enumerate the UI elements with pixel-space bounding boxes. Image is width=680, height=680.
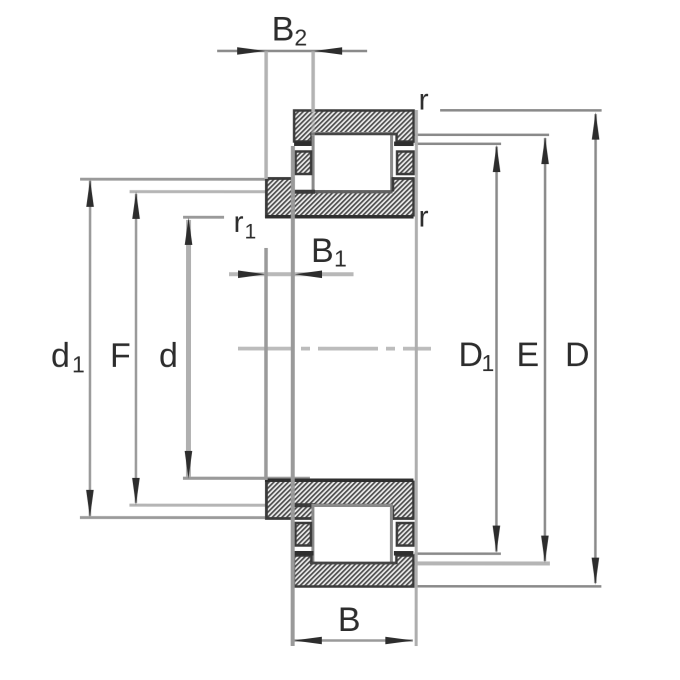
svg-text:B: B xyxy=(338,601,361,639)
svg-text:d: d xyxy=(159,337,178,375)
svg-text:d: d xyxy=(51,337,70,375)
svg-text:F: F xyxy=(110,337,131,375)
svg-text:B: B xyxy=(311,232,334,270)
svg-text:D: D xyxy=(565,336,590,374)
svg-text:r: r xyxy=(234,206,244,239)
svg-text:1: 1 xyxy=(245,220,257,243)
svg-text:E: E xyxy=(516,336,539,374)
svg-text:r: r xyxy=(419,201,429,234)
svg-text:1: 1 xyxy=(481,350,494,376)
svg-text:1: 1 xyxy=(72,351,85,377)
svg-text:2: 2 xyxy=(294,24,307,50)
svg-text:r: r xyxy=(419,84,429,117)
svg-text:1: 1 xyxy=(334,245,347,271)
svg-text:D: D xyxy=(458,336,483,374)
svg-text:B: B xyxy=(272,10,295,48)
